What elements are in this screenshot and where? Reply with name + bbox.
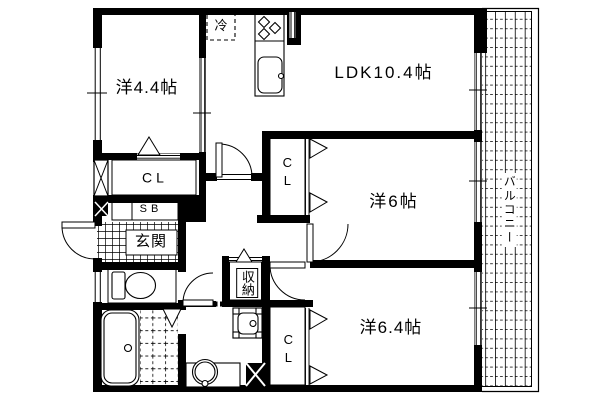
washing-machine-pan-icon <box>233 308 262 338</box>
kitchen-sink-icon <box>258 57 284 93</box>
balcony-label: バルコニー <box>502 173 517 247</box>
room-label-western-6: 洋6帖 <box>369 193 418 211</box>
room-label-ldk: LDK10.4帖 <box>334 64 433 82</box>
entrance-label: 玄関 <box>135 234 167 250</box>
window-marker <box>290 12 296 38</box>
bathtub-icon <box>101 310 139 386</box>
closet-label-main: CL <box>142 171 168 186</box>
folding-door-triangle <box>310 310 327 329</box>
folding-door-triangle <box>236 249 252 262</box>
room-label-western-6-4: 洋6.4帖 <box>360 319 423 337</box>
stove-icon <box>259 17 281 40</box>
window-marker <box>193 58 211 152</box>
door-swing-arc <box>62 226 95 259</box>
ldk-door <box>216 143 252 177</box>
entrance-door <box>62 222 95 259</box>
folding-door-triangle <box>138 137 160 155</box>
pillar-x-marker <box>246 363 265 386</box>
closet-label-west64: CL <box>281 332 295 368</box>
pillar-x-marker <box>94 160 108 196</box>
folding-door-triangle <box>310 193 327 212</box>
toilet-icon <box>112 272 156 299</box>
door-swing-arc <box>310 224 348 262</box>
window-marker <box>87 48 107 140</box>
toilet-door <box>183 273 213 306</box>
storage-label: 収納 <box>236 268 258 298</box>
door-swing-arc <box>270 265 305 300</box>
room-label-western-4-4: 洋4.4帖 <box>116 79 179 97</box>
western6-door <box>307 224 348 262</box>
shoe-box-label: SB <box>140 204 163 216</box>
western64-door <box>270 262 305 300</box>
window-marker <box>94 272 102 302</box>
closet-label-west6: CL <box>280 155 294 191</box>
floor-plan: 洋4.4帖 LDK10.4帖 洋6帖 洋6.4帖 CL CL CL SB 玄関 … <box>0 0 600 400</box>
pillar-x-marker <box>95 202 108 216</box>
door-swing-arc <box>183 273 213 303</box>
washbasin-icon <box>186 360 240 388</box>
refrigerator-label: 冷 <box>214 19 227 33</box>
folding-door-triangle <box>310 366 327 384</box>
folding-door-triangle <box>310 139 327 158</box>
door-swing-arc <box>219 144 252 177</box>
